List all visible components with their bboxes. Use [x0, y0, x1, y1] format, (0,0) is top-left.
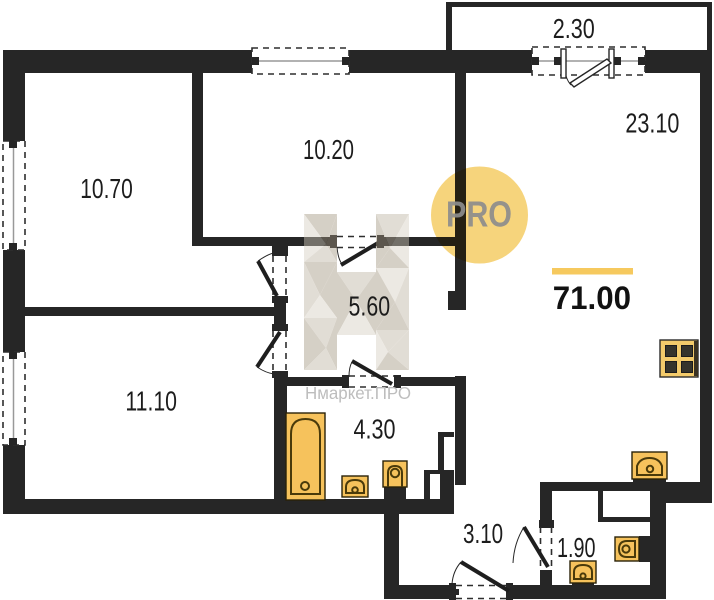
svg-text:11.10: 11.10 [125, 386, 177, 417]
svg-text:3.10: 3.10 [463, 518, 503, 549]
svg-text:PRO: PRO [446, 194, 512, 235]
svg-text:71.00: 71.00 [553, 280, 631, 316]
svg-text:10.20: 10.20 [303, 134, 354, 165]
svg-text:23.10: 23.10 [625, 108, 679, 139]
svg-text:Нмаркет.ПРО: Нмаркет.ПРО [305, 383, 411, 403]
svg-text:1.90: 1.90 [557, 532, 596, 563]
svg-text:5.60: 5.60 [349, 291, 391, 322]
svg-text:10.70: 10.70 [80, 173, 133, 204]
svg-text:2.30: 2.30 [553, 13, 595, 44]
svg-text:4.30: 4.30 [354, 414, 396, 445]
